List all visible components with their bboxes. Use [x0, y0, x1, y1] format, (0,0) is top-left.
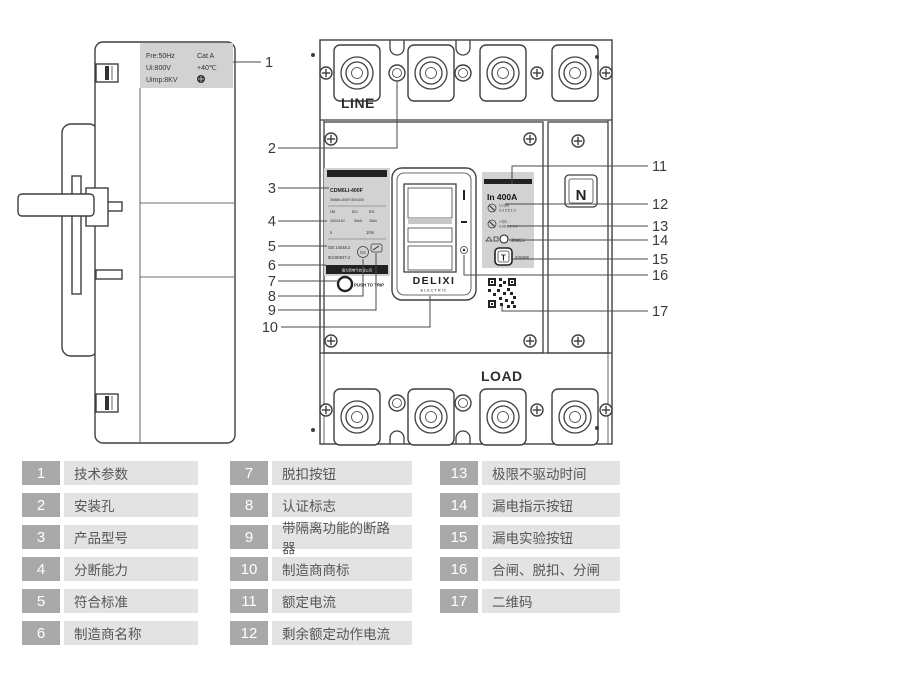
breaker-diagram: Fre:50Hz Cat A Ui:800V +40℃ Uimp:8KV [0, 0, 900, 455]
legend-item-number: 13 [440, 461, 478, 485]
legend-item-label: 制造商名称 [64, 621, 198, 645]
mounting-hole [389, 395, 405, 411]
legend-item-label: 符合标准 [64, 589, 198, 613]
terminal-lug [408, 45, 454, 101]
legend-column-3: 13极限不驱动时间 14漏电指示按钮 15漏电实验按钮 16合闸、脱扣、分闸 1… [440, 461, 620, 613]
legend-item-label: 产品型号 [64, 525, 198, 549]
legend-item-number: 4 [22, 557, 60, 581]
front-view: LINE LOAD [311, 40, 612, 445]
terminal-lug [552, 389, 598, 445]
legend-item: 14漏电指示按钮 [440, 493, 620, 517]
brand-sub: ELECTRIC [421, 289, 448, 293]
legend-item-label: 认证标志 [272, 493, 412, 517]
svg-text:△t(s): △t(s) [499, 220, 507, 224]
standard-gb: GB 14048.2 [328, 245, 351, 250]
legend-item-number: 1 [22, 461, 60, 485]
label-ics: Ics [369, 209, 374, 214]
callout-2: 2 [268, 141, 276, 157]
legend-item-number: 9 [230, 525, 268, 549]
value-icu: 50kA [354, 219, 363, 223]
cert-dot-icon [197, 75, 205, 83]
operating-handle: DELIXI ELECTRIC [392, 168, 476, 300]
value-ue: 400/415V [330, 219, 346, 223]
legend-item: 2安装孔 [22, 493, 198, 517]
legend-item-number: 2 [22, 493, 60, 517]
side-clip-2 [96, 270, 122, 279]
legend-item: 5符合标准 [22, 589, 198, 613]
legend-item: 1技术参数 [22, 461, 198, 485]
callout-17: 17 [652, 304, 668, 320]
breaker-diagram-page: Fre:50Hz Cat A Ui:800V +40℃ Uimp:8KV [0, 0, 900, 684]
handle-shade [408, 218, 452, 224]
callout-14: 14 [652, 233, 668, 249]
terminal-lug [334, 389, 380, 445]
pin-hole [311, 53, 315, 57]
screw-icon [325, 133, 337, 145]
tech-temp: +40℃ [197, 65, 217, 72]
model-number: CDM6LI-400F [330, 188, 363, 194]
standard-iec: IEC60947-2 [328, 255, 351, 260]
tech-ui: Ui:800V [146, 65, 171, 72]
side-notch-bottom [96, 394, 118, 412]
n-letter: N [576, 187, 587, 204]
terminal-lug [552, 45, 598, 101]
terminal-lug [334, 45, 380, 101]
legend-item: 9带隔离功能的断路器 [230, 525, 412, 549]
legend-item: 12剩余额定动作电流 [230, 621, 412, 645]
tech-cat: Cat A [197, 53, 214, 60]
legend-item: 16合闸、脱扣、分闸 [440, 557, 620, 581]
legend-item-number: 5 [22, 589, 60, 613]
legend-item-label: 技术参数 [64, 461, 198, 485]
legend-item-number: 12 [230, 621, 268, 645]
screw-icon [531, 67, 543, 79]
load-text: LOAD [481, 368, 523, 384]
model-code: 3N5ML/400F/300/300 [330, 198, 364, 202]
legend-item: 10制造商商标 [230, 557, 412, 581]
screw-icon [325, 335, 337, 347]
legend-item-label: 脱扣按钮 [272, 461, 412, 485]
callout-15: 15 [652, 252, 668, 268]
label-icu: Icu [352, 209, 358, 214]
callout-9: 9 [268, 303, 276, 319]
side-toggle-handle [18, 194, 94, 216]
mounting-hole [455, 65, 471, 81]
callout-4: 4 [268, 214, 276, 230]
legend-column-2: 7脱扣按钮 8认证标志 9带隔离功能的断路器 10制造商商标 11额定电流 12… [230, 461, 412, 645]
terminal-lug [480, 389, 526, 445]
manufacturer-name: 德力西电气有限公司 [342, 268, 373, 273]
legend-column-1: 1技术参数 2安装孔 3产品型号 4分断能力 5符合标准 6制造商名称 [22, 461, 198, 645]
tech-parameters-label: Fre:50Hz Cat A Ui:800V +40℃ Uimp:8KV [140, 43, 233, 88]
callout-7: 7 [268, 274, 276, 290]
legend-item-number: 6 [22, 621, 60, 645]
value-ii: 10In [366, 230, 375, 235]
callout-16: 16 [652, 268, 668, 284]
pin-hole [311, 428, 315, 432]
legend-item-number: 17 [440, 589, 478, 613]
pin-hole [595, 55, 599, 59]
legend-item-label: 漏电指示按钮 [482, 493, 620, 517]
screw-icon [572, 135, 584, 147]
legend-item-label: 二维码 [482, 589, 620, 613]
rcd-rating-label: In 400A I△n(A) 0.3 0.5 1.0 △t(s) 0.06 0.… [482, 172, 534, 268]
side-notch-top [96, 64, 118, 82]
terminal-lug [480, 45, 526, 101]
label-ii: Ii [330, 230, 332, 235]
screw-icon [600, 67, 612, 79]
svg-text:0.3 0.5 1.0: 0.3 0.5 1.0 [499, 209, 516, 213]
screw-icon [320, 404, 332, 416]
side-body [95, 42, 235, 443]
value-ics: 35kA [369, 219, 378, 223]
callout-1: 1 [265, 55, 273, 71]
legend-item-label: 额定电流 [272, 589, 412, 613]
legend-item-number: 10 [230, 557, 268, 581]
legend-item-number: 16 [440, 557, 478, 581]
push-to-trip-text: PUSH TO TRIP [354, 283, 384, 288]
legend-item-label: 制造商商标 [272, 557, 412, 581]
legend-item-label: 漏电实验按钮 [482, 525, 620, 549]
legend-item: 3产品型号 [22, 525, 198, 549]
callout-3: 3 [268, 181, 276, 197]
brand-logo: DELIXI [413, 275, 456, 287]
callout-6: 6 [268, 258, 276, 274]
legend-item-number: 3 [22, 525, 60, 549]
svg-text:T: T [501, 254, 506, 263]
legend-item-number: 14 [440, 493, 478, 517]
legend-item-label: 合闸、脱扣、分闸 [482, 557, 620, 581]
label-ue: Ue [330, 209, 336, 214]
legend-item: 6制造商名称 [22, 621, 198, 645]
legend-item: 13极限不驱动时间 [440, 461, 620, 485]
legend-item: 4分断能力 [22, 557, 198, 581]
tech-freq: Fre:50Hz [146, 53, 175, 60]
legend-item-number: 15 [440, 525, 478, 549]
line-text: LINE [341, 95, 375, 111]
pin-hole [595, 426, 599, 430]
legend-item-label: 安装孔 [64, 493, 198, 517]
legend-item: 15漏电实验按钮 [440, 525, 620, 549]
legend-item-number: 8 [230, 493, 268, 517]
legend-item-number: 11 [230, 589, 268, 613]
legend-item-number: 7 [230, 461, 268, 485]
legend-item: 8认证标志 [230, 493, 412, 517]
legend-item: 11额定电流 [230, 589, 412, 613]
screw-icon [572, 335, 584, 347]
mounting-hole [389, 65, 405, 81]
legend-item: 17二维码 [440, 589, 620, 613]
screw-icon [600, 404, 612, 416]
legend-item-label: 极限不驱动时间 [482, 461, 620, 485]
rated-current: In 400A [487, 192, 517, 202]
side-view: Fre:50Hz Cat A Ui:800V +40℃ Uimp:8KV [18, 42, 235, 443]
legend-item: 7脱扣按钮 [230, 461, 412, 485]
tech-uimp: Uimp:8KV [146, 77, 178, 84]
callout-10: 10 [262, 320, 278, 336]
callout-11: 11 [652, 159, 667, 175]
legend-item-label: 分断能力 [64, 557, 198, 581]
screw-icon [524, 335, 536, 347]
legend-item-label: 带隔离功能的断路器 [272, 525, 412, 549]
screw-icon [524, 133, 536, 145]
legend-item-label: 剩余额定动作电流 [272, 621, 412, 645]
svg-text:CCC: CCC [360, 251, 366, 255]
product-label: CDM6LI-400F 3N5ML/400F/300/300 Ue Icu Ic… [324, 168, 390, 276]
callout-5: 5 [268, 239, 276, 255]
mounting-hole [455, 395, 471, 411]
terminal-lug [408, 389, 454, 445]
screw-icon [531, 404, 543, 416]
callout-12: 12 [652, 197, 668, 213]
screw-icon [320, 67, 332, 79]
